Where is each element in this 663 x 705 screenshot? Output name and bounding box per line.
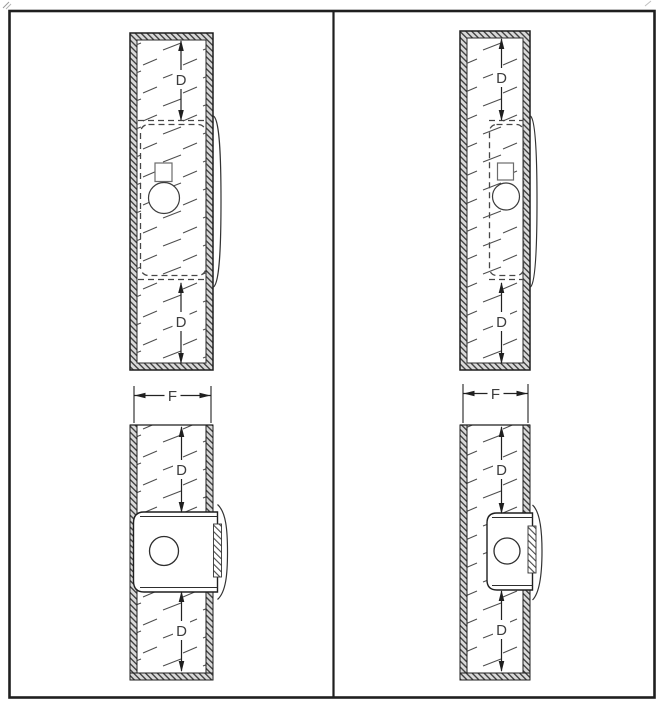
dim-label-d: D [176,72,187,89]
drawing-canvas: D D D D [0,0,663,705]
arrowhead-left [135,393,146,399]
bracket-hole [150,537,179,566]
post-wall-bottom [130,673,213,680]
keyhole-slot-bulb [149,183,180,214]
keyhole-slot-top [155,163,172,182]
fastener-section [214,524,222,577]
dim-label-d: D [496,314,507,331]
post-wall-right-upper [523,425,530,513]
keyhole-slot-top [498,163,514,180]
post-wall-right-upper [206,425,213,513]
post-wall-right-lower [206,591,213,680]
dimension-f: F [463,384,528,423]
panel-top-left: D D [130,33,221,370]
corner-tick [645,1,651,6]
post-wall-right-lower [523,590,530,680]
border-frame [10,11,655,698]
dim-label-d: D [496,462,507,479]
panel-top-right: D D [460,31,537,370]
panel-bottom-right: F D D [460,384,542,680]
dim-label-d: D [176,314,187,331]
sheet-border [3,1,655,698]
post-wall-bottom [460,673,530,680]
dim-label-d: D [176,462,187,479]
dimension-f: F [134,386,211,423]
panel-bottom-left: F D D [130,386,228,680]
dim-label-d: D [496,70,507,87]
post-wall-left [460,425,467,680]
dim-label-d: D [176,623,187,640]
dim-label-d: D [496,622,507,639]
retaining-clip-profile [214,116,222,287]
drawing-sheet: D D D D [0,0,663,705]
keyhole-slot-bulb [493,183,520,210]
arrowhead-left [464,391,475,397]
fastener-section [528,526,536,573]
bracket-hole [494,538,520,564]
dim-label-f: F [491,386,500,403]
retaining-clip-profile [531,116,538,287]
dim-label-f: F [168,388,177,405]
arrowhead-right [517,391,528,397]
arrowhead-right [200,393,211,399]
